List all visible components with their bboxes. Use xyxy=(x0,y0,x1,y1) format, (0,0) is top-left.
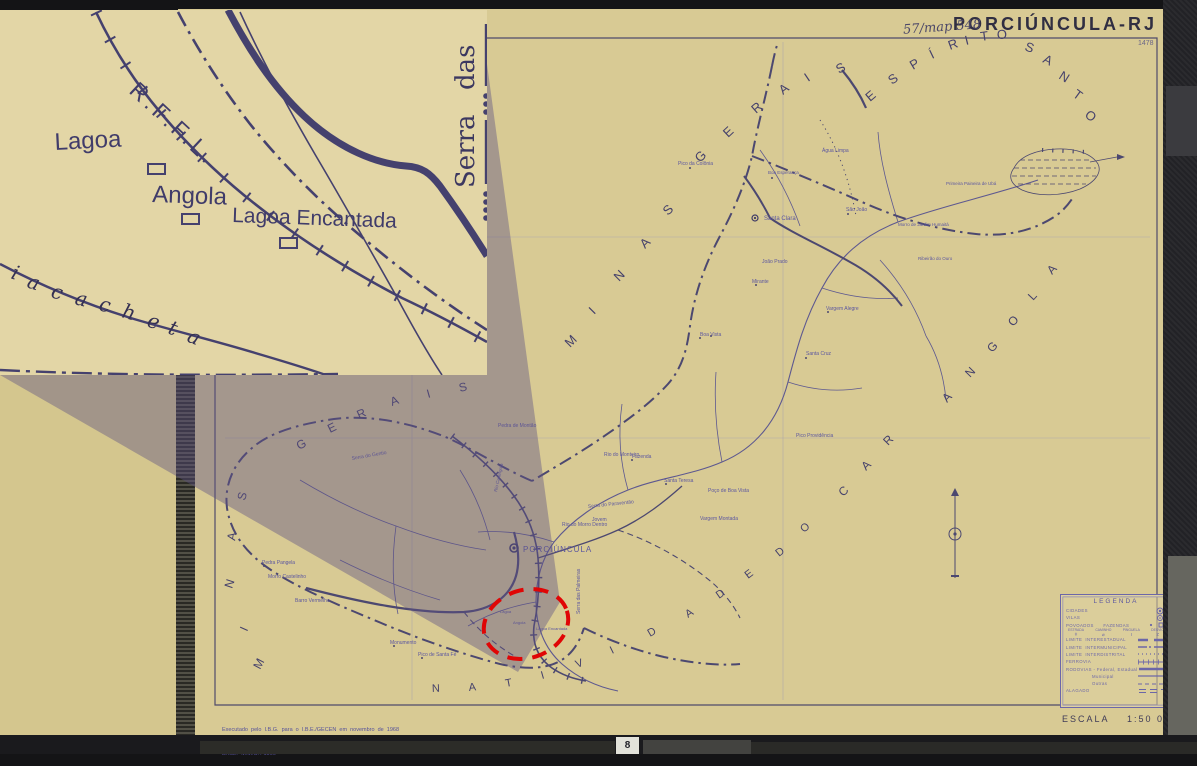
place-label: Pedra Pangela xyxy=(262,560,295,566)
region-letter-natividade: D xyxy=(646,625,659,639)
region-letter-natividade: A xyxy=(683,606,696,620)
boundary-interdistrital xyxy=(820,120,856,216)
place-label: Mirante xyxy=(752,279,769,285)
inset-label: a xyxy=(73,286,90,312)
boundary-mg-rj xyxy=(532,66,772,481)
legend-rows: CIDADESVILASPOVOADOS FAZENDASESTRADAǂCAM… xyxy=(1066,607,1166,695)
region-letter-natividade: I xyxy=(540,670,546,682)
photo-right-edge xyxy=(1163,0,1197,754)
legend-label: LIMITE INTERMUNICIPAL xyxy=(1066,645,1127,650)
region-letter-minas-lower: N xyxy=(222,577,238,590)
place-label: Vargem Alegre xyxy=(826,306,859,312)
legend-crossing-glyph: ǂ xyxy=(1075,633,1078,637)
region-letter-espirito-santo: P xyxy=(907,55,922,72)
sheet-number: 1478 xyxy=(1138,40,1154,47)
region-letter-carangola: G xyxy=(984,339,1001,355)
inset-label: h xyxy=(120,299,139,326)
lagoa-label: Lagoa xyxy=(54,126,123,156)
region-letter-minas-gerais-upper: N xyxy=(611,267,628,284)
road-ne xyxy=(842,70,866,108)
credit-line-1: Executado pelo I.B.G. para o I.B.E./GECE… xyxy=(222,726,399,734)
photo-edge-patch xyxy=(1166,86,1197,156)
legend-label: VILAS xyxy=(1066,615,1080,620)
region-letter-natividade: T xyxy=(504,677,513,690)
legend-crossing-glyph: ⌀ xyxy=(1102,633,1105,637)
place-label: Santa Teresa xyxy=(664,478,694,484)
photo-edge-segment xyxy=(643,740,751,754)
region-letter-carangola: O xyxy=(1005,313,1022,329)
region-letter-natividade: N xyxy=(432,683,440,695)
inset-label: e xyxy=(144,308,163,334)
region-letter-carangola: A xyxy=(939,390,955,405)
photo-bottom-edge: 8 xyxy=(0,735,1197,754)
legend-crossing-item: CAMINHO⌀ xyxy=(1095,629,1111,636)
region-letter-carangola: R xyxy=(880,432,896,448)
region-letter-espirito-santo: E xyxy=(862,87,879,104)
legend-label: FERROVIA xyxy=(1066,659,1091,664)
legend-box: LEGENDA CIDADESVILASPOVOADOS FAZENDASEST… xyxy=(1060,594,1172,708)
place-label: Poço de Boa Vista xyxy=(708,488,749,494)
inset-canvas: R.F.F.L.LagoaAngolaLagoa EncantadaSerrad… xyxy=(0,10,487,375)
arrow-head xyxy=(1117,154,1125,160)
region-letter-natividade: I xyxy=(608,645,616,657)
region-letter-espirito-santo: A xyxy=(1041,51,1056,68)
legend-title: LEGENDA xyxy=(1066,598,1166,605)
place-label: Rio do Morro Dentro xyxy=(562,522,608,528)
place-label: Santa Cruz xyxy=(806,351,832,357)
place-label: Primeira Paineira de Ubá xyxy=(946,181,997,186)
place-label: Morro Castelinho xyxy=(268,574,306,580)
photo-edge-patch xyxy=(1168,556,1197,754)
inset-label: t xyxy=(165,315,182,341)
region-letter-espirito-santo: Í xyxy=(927,46,937,61)
place-label: Morro de Jardim Humaitá xyxy=(898,222,949,227)
region-letter-espirito-santo: T xyxy=(1070,86,1085,103)
place-label: Vargem Montada xyxy=(700,516,738,522)
legend-label: POVOADOS FAZENDAS xyxy=(1066,623,1129,628)
inset-boundary-dash xyxy=(178,12,487,330)
place-label: Pico de Santa Fé xyxy=(418,652,457,658)
legend-crossing-item: ESTRADAǂ xyxy=(1068,629,1084,636)
lagoa-encantada-label: Lagoa Encantada xyxy=(232,204,398,233)
compass-north-symbol xyxy=(949,488,961,578)
inset-label: a xyxy=(24,269,43,296)
inset-label: c xyxy=(97,292,114,318)
legend-label: ALAGADO xyxy=(1066,688,1090,693)
legend-label: CIDADES xyxy=(1066,608,1088,613)
region-letter-natividade: V xyxy=(574,657,586,671)
region-letter-minas-lower: I xyxy=(237,624,251,633)
place-label: Serra do Paraventão xyxy=(588,499,635,510)
legend-label: LIMITE INTERESTADUAL xyxy=(1066,637,1126,642)
page-number-tab: 8 xyxy=(616,737,639,754)
place-label: Boa Esperança xyxy=(768,170,799,175)
place-label: Serra das Palmeiras xyxy=(576,568,582,614)
inset-serra-boundary xyxy=(484,24,487,220)
region-letter-minas-gerais-upper: A xyxy=(776,80,792,97)
inset-stream xyxy=(240,12,442,375)
region-letter-minas-gerais-upper: I xyxy=(586,304,599,317)
place-label: Monumento xyxy=(390,640,417,646)
marsh-area xyxy=(1011,149,1125,195)
place-label: Fazenda xyxy=(632,454,652,460)
place-label: Barro Vermelho xyxy=(295,598,330,604)
das-label: das xyxy=(451,45,481,91)
region-letter-carangola: N xyxy=(962,364,978,380)
region-letter-espirito-santo: S xyxy=(885,70,901,87)
region-letter-minas-lower: A xyxy=(224,531,239,541)
photo-edge-segment xyxy=(751,742,1197,754)
river-main xyxy=(536,180,1038,691)
region-letter-minas-gerais-upper: S xyxy=(660,201,677,218)
region-letter-carangola: A xyxy=(858,458,873,474)
region-letter-do: D xyxy=(773,545,787,559)
inset-label: i xyxy=(8,260,22,285)
angola-label: Angola xyxy=(152,181,228,211)
region-letter-natividade: E xyxy=(743,567,756,581)
legend-row: ALAGADO xyxy=(1066,687,1166,694)
region-letter-carangola: L xyxy=(1025,288,1040,303)
region-letter-espirito-santo: O xyxy=(1082,107,1099,125)
region-letter-minas-gerais-upper: A xyxy=(637,234,654,251)
place-label: Boa Vista xyxy=(700,332,722,338)
inset-bottom-dash-line xyxy=(0,370,338,375)
place-label: Santa Clara xyxy=(764,216,796,222)
inset-label: c xyxy=(49,279,66,305)
region-letter-espirito-santo: S xyxy=(1023,39,1037,56)
serra-label: Serra xyxy=(451,114,481,188)
boundary-top xyxy=(772,42,778,66)
region-letter-espirito-santo: N xyxy=(1056,68,1072,86)
region-letter-minas-gerais-upper: I xyxy=(801,70,812,84)
region-letter-minas-lower: M xyxy=(250,656,267,671)
page-title: PORCIÚNCULA-RJ xyxy=(953,14,1157,35)
legend-label: LIMITE INTERDISTRITAL xyxy=(1066,652,1126,657)
place-label: Pico da Colônia xyxy=(678,161,713,167)
railway-name-label: R.F.F.L. xyxy=(125,77,223,171)
photo-edge-segment xyxy=(200,741,615,754)
legend-label: RODOVIAS - Federal, Estadual xyxy=(1066,667,1137,672)
region-letter-minas-gerais-upper: E xyxy=(720,123,737,140)
place-label: Água Limpa xyxy=(822,147,849,154)
region-letter-natividade: D xyxy=(714,587,727,601)
legend-crossing-glyph: I xyxy=(1131,633,1132,637)
scale-label: ESCALA 1:50 000 xyxy=(1062,714,1178,724)
place-label: Ribeirão do Ouro xyxy=(918,256,953,261)
region-letter-minas-gerais-upper: R xyxy=(748,99,765,116)
photo-top-edge xyxy=(0,0,1197,9)
region-letter-carangola: C xyxy=(835,483,851,499)
region-letter-natividade: A xyxy=(468,681,477,694)
magnified-inset: R.F.F.L.LagoaAngolaLagoa EncantadaSerrad… xyxy=(0,10,487,375)
place-label: Pico Providência xyxy=(796,433,833,439)
legend-symbol-marsh xyxy=(1134,687,1166,695)
place-label: São João xyxy=(846,207,867,213)
legend-label: Municipal xyxy=(1066,674,1114,679)
road-other xyxy=(618,530,740,618)
region-letter-do: O xyxy=(798,520,813,535)
region-letter-minas-gerais-upper: M xyxy=(562,332,580,350)
legend-label: Outras xyxy=(1066,681,1107,686)
place-label: João Prado xyxy=(762,259,788,265)
region-letter-carangola: A xyxy=(1044,262,1060,277)
